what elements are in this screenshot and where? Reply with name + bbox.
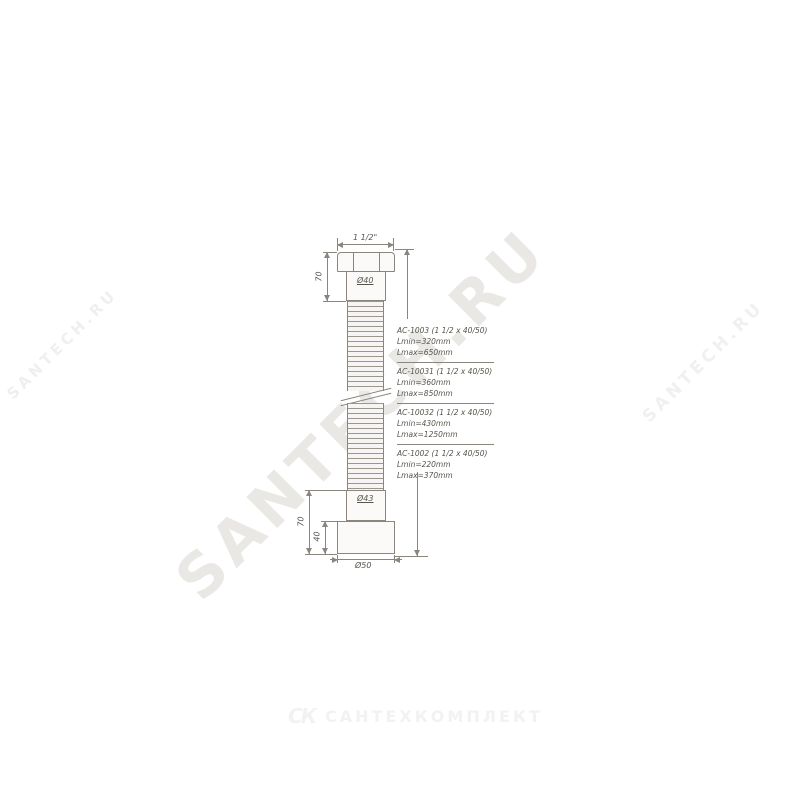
arrow-icon <box>394 557 400 563</box>
hex-nut <box>337 252 395 272</box>
dim-line-thread <box>337 244 394 245</box>
product-drawing-page: SANTECH.RU SANTECH.RU SANTECH.RU 1 1/2" … <box>0 0 800 800</box>
ext-line <box>395 556 428 557</box>
dim-neck-height-label: 70 <box>315 271 324 281</box>
arrow-icon <box>388 242 394 248</box>
corrugated-pipe-lower <box>347 403 384 490</box>
dim-outlet-diameter: Ø43 <box>357 494 373 503</box>
nut-facet-line <box>379 253 380 271</box>
variant-lmin: Lmin=220mm <box>397 459 494 470</box>
dim-cuff-height-label: 40 <box>313 531 322 541</box>
dim-line-cuff-diameter <box>330 559 402 560</box>
arrow-icon <box>306 490 312 496</box>
arrow-icon <box>324 252 330 258</box>
nut-facet-line <box>353 253 354 271</box>
watermark-left: SANTECH.RU <box>3 285 121 403</box>
variant-code: AC-10032 (1 1/2 x 40/50) <box>397 407 494 418</box>
dim-line-neck-height <box>327 252 328 301</box>
brand-monogram-icon: СК <box>288 704 315 728</box>
arrow-icon <box>306 548 312 554</box>
dim-thread-label: 1 1/2" <box>353 233 377 242</box>
arrow-icon <box>404 249 410 255</box>
variant-code: AC-10031 (1 1/2 x 40/50) <box>397 366 494 377</box>
ext-line <box>323 301 346 302</box>
variant-lmax: Lmax=850mm <box>397 388 494 399</box>
brand-label: САНТЕХКОМПЛЕКТ <box>325 707 543 726</box>
corrugated-pipe-upper <box>347 301 384 391</box>
variant-lmax: Lmax=370mm <box>397 470 494 481</box>
dim-line-outlet-height <box>309 490 310 554</box>
variant-lmin: Lmin=320mm <box>397 336 494 347</box>
variant-item: AC-1003 (1 1/2 x 40/50) Lmin=320mm Lmax=… <box>397 322 494 362</box>
watermark-right: SANTECH.RU <box>639 297 768 426</box>
variant-item: AC-10032 (1 1/2 x 40/50) Lmin=430mm Lmax… <box>397 403 494 444</box>
variant-list: AC-1003 (1 1/2 x 40/50) Lmin=320mm Lmax=… <box>397 322 494 485</box>
arrow-icon <box>324 295 330 301</box>
variant-lmin: Lmin=430mm <box>397 418 494 429</box>
variant-code: AC-1002 (1 1/2 x 40/50) <box>397 448 494 459</box>
length-leader-top <box>407 249 408 319</box>
dim-neck-diameter: Ø40 <box>357 276 373 285</box>
footer-brand: СК САНТЕХКОМПЛЕКТ <box>288 704 543 728</box>
variant-code: AC-1003 (1 1/2 x 40/50) <box>397 325 494 336</box>
variant-lmin: Lmin=360mm <box>397 377 494 388</box>
dim-outlet-height-label: 70 <box>297 516 306 526</box>
variant-lmax: Lmax=650mm <box>397 347 494 358</box>
rubber-cuff <box>337 521 395 554</box>
variant-lmax: Lmax=1250mm <box>397 429 494 440</box>
arrow-icon <box>322 521 328 527</box>
variant-item: AC-10031 (1 1/2 x 40/50) Lmin=360mm Lmax… <box>397 362 494 403</box>
arrow-icon <box>332 557 338 563</box>
arrow-icon <box>322 548 328 554</box>
variant-item: AC-1002 (1 1/2 x 40/50) Lmin=220mm Lmax=… <box>397 444 494 485</box>
dim-cuff-diameter-label: Ø50 <box>355 561 371 570</box>
ext-line <box>305 554 337 555</box>
arrow-icon <box>337 242 343 248</box>
